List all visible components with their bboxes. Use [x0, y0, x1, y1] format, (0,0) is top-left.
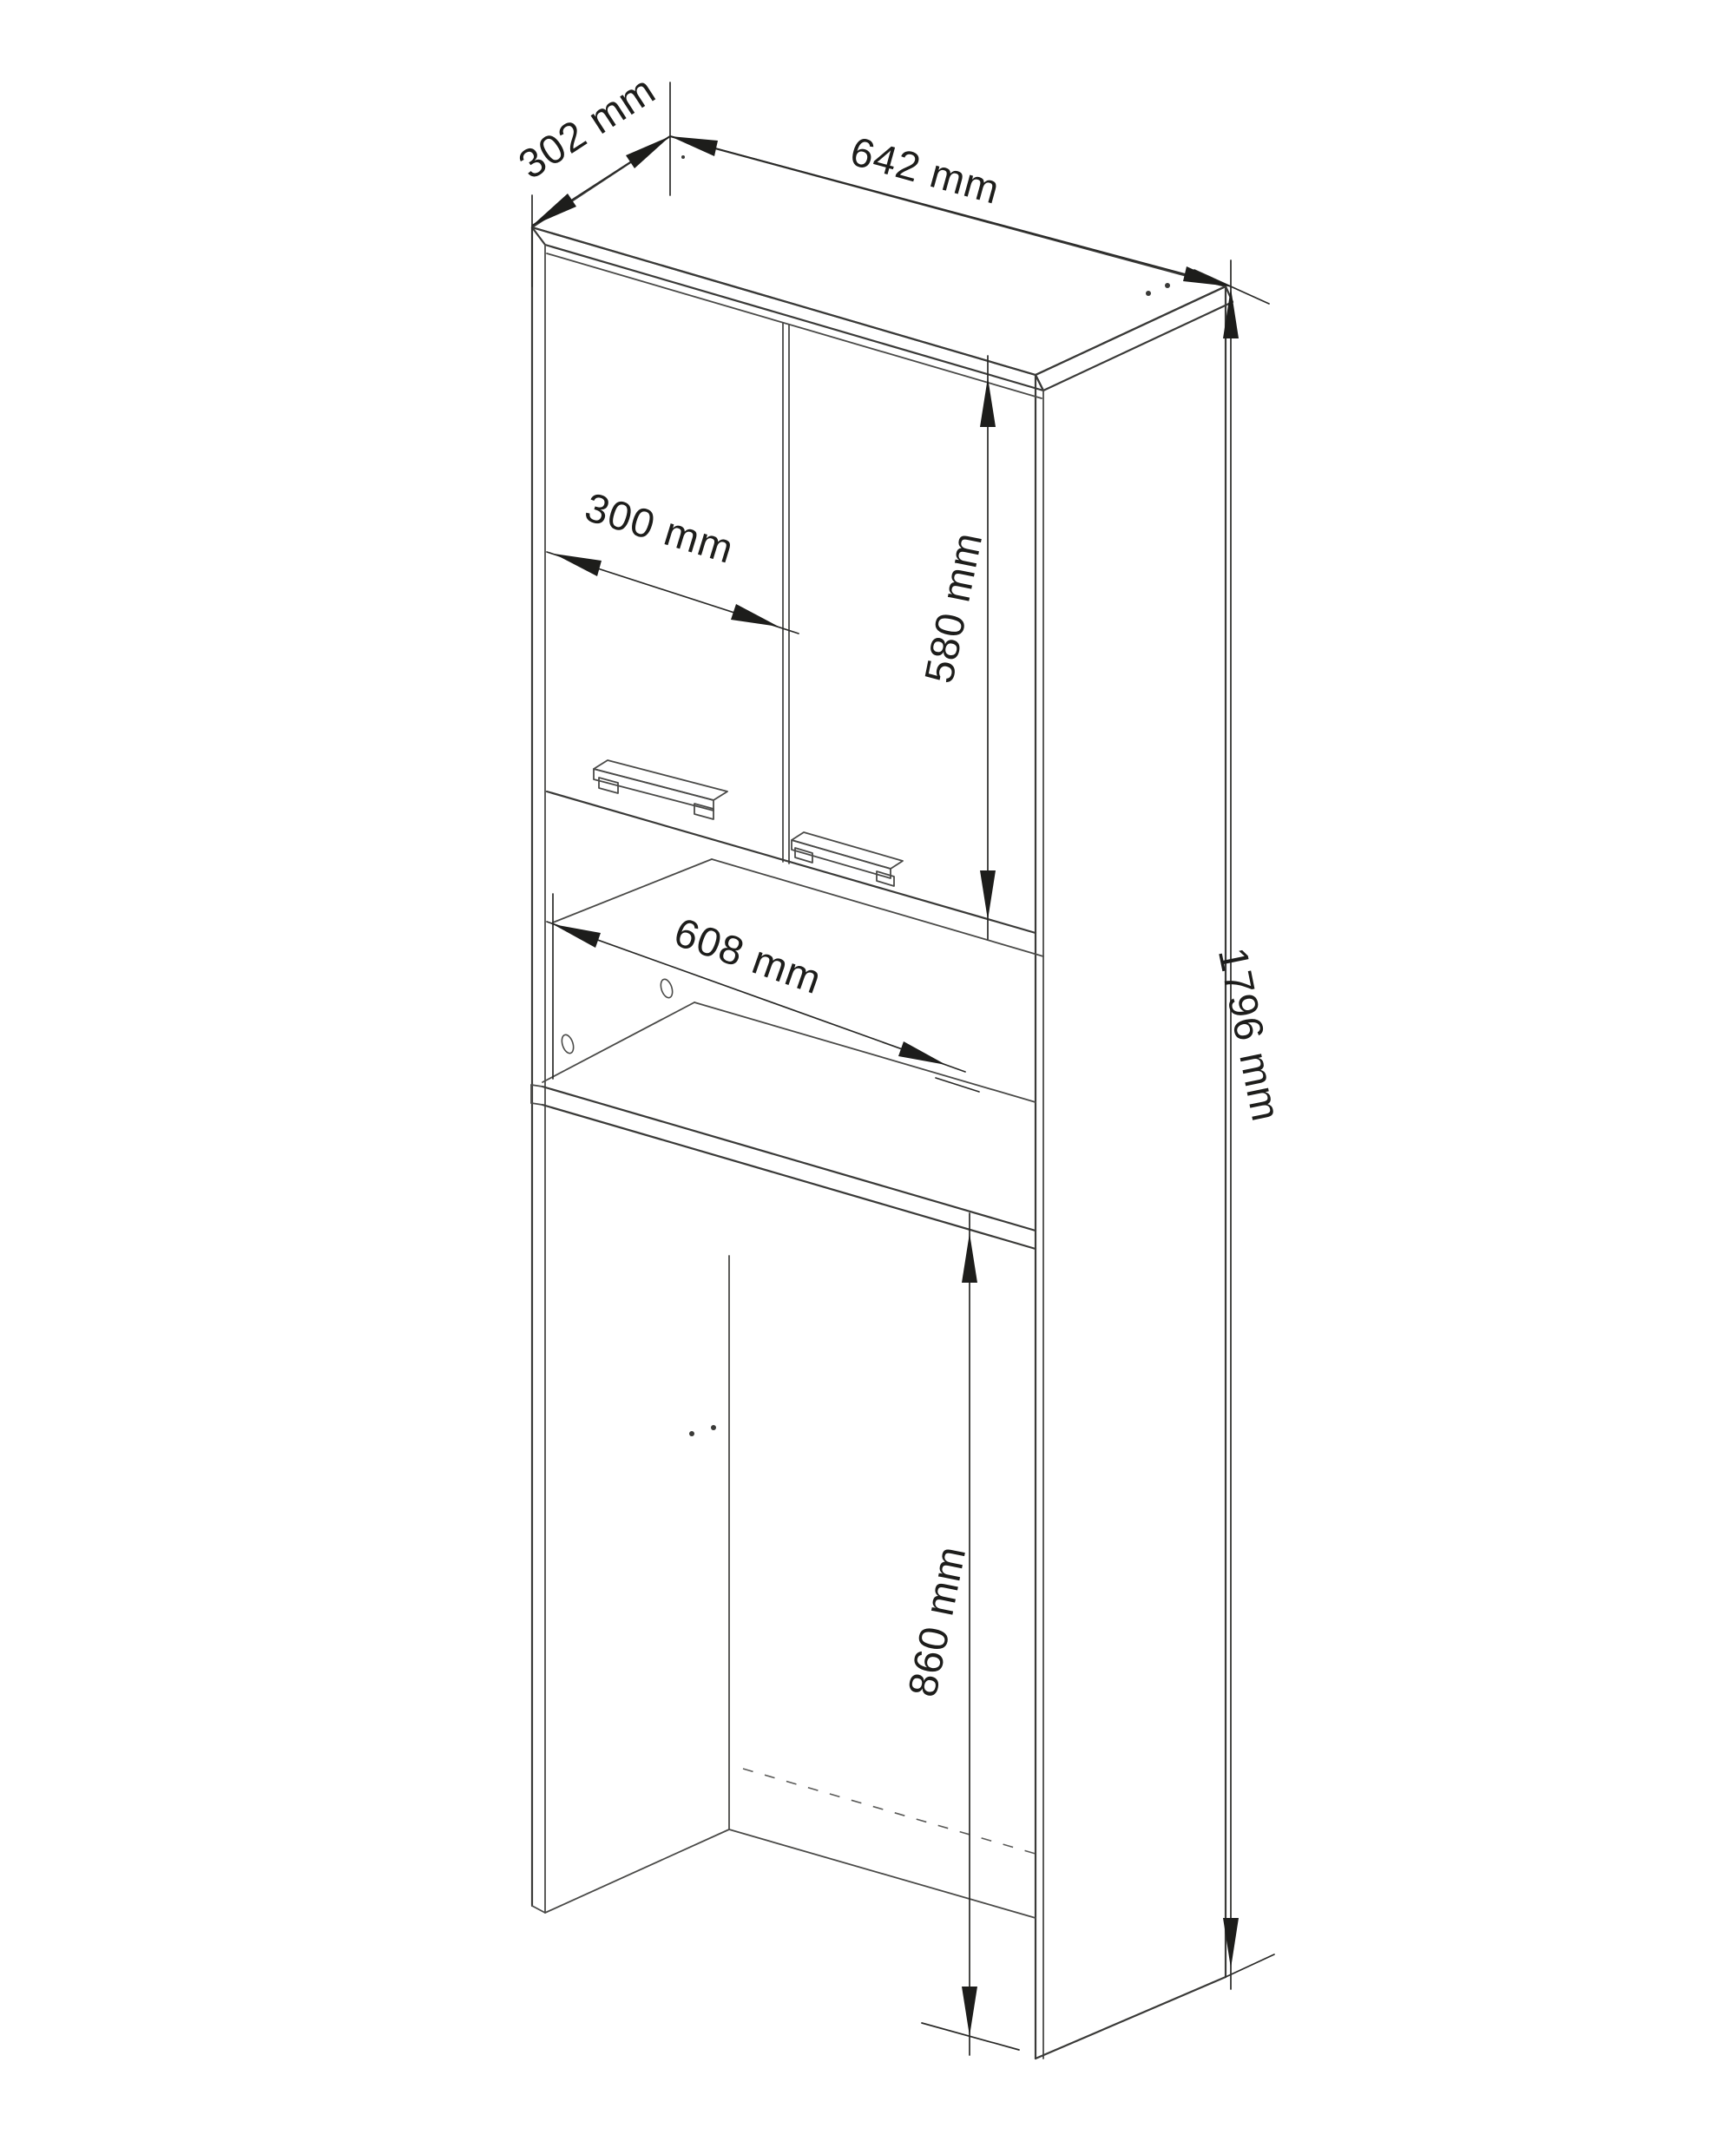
dimension-niche-width: 608 mm — [547, 894, 979, 1092]
door-handles — [594, 760, 903, 886]
arrowhead — [553, 924, 601, 948]
drawing-page: 302 mm 642 mm 300 mm 580 mm — [0, 0, 1736, 2141]
arrowhead — [626, 136, 670, 168]
floor-back-edge — [729, 1829, 1036, 1918]
arrowhead — [532, 194, 576, 226]
dim-label-door-width: 300 mm — [580, 483, 740, 572]
cabinet-structure — [531, 136, 1233, 2059]
shelf-pin-hole-lower — [560, 1034, 575, 1055]
fitting-dot-top-1 — [1146, 291, 1151, 296]
extension-line — [1226, 1954, 1274, 1977]
dimension-machine-space-height: 860 mm — [899, 1213, 1019, 2055]
arrowhead — [980, 870, 996, 920]
dim-label-door-height: 580 mm — [916, 529, 991, 687]
arrowhead — [962, 1233, 977, 1283]
dimension-total-height: 1796 mm — [1210, 260, 1290, 1989]
arrowhead — [731, 604, 779, 627]
dimension-depth: 302 mm — [510, 66, 670, 286]
left-panel-bottom-edge — [532, 1906, 545, 1913]
bottom-board-bottom-edge — [542, 1105, 1036, 1249]
dim-label-total-height: 1796 mm — [1210, 943, 1290, 1125]
dimension-door-height: 580 mm — [916, 356, 996, 939]
arrowhead — [1183, 266, 1231, 286]
door-bottom-edge — [547, 791, 1036, 933]
niche-floor-depth-edge — [542, 1002, 694, 1082]
arrowhead — [554, 554, 602, 576]
bottom-board-top-edge — [542, 1087, 1036, 1231]
fitting-dot-back-1 — [689, 1431, 694, 1436]
dimensions: 302 mm 642 mm 300 mm 580 mm — [510, 66, 1290, 2055]
niche-floor-back-edge — [694, 1002, 1036, 1102]
fitting-dot-top-3 — [681, 155, 685, 159]
top-slab-front-face — [532, 227, 1043, 391]
dimension-door-width: 300 mm — [547, 483, 799, 634]
floor-left-depth-edge — [545, 1829, 729, 1913]
dimension-width: 642 mm — [670, 128, 1269, 304]
shelf-pin-hole-upper — [659, 978, 674, 1000]
right-side-bottom-edge — [1036, 1977, 1226, 2059]
arrowhead — [962, 1987, 977, 2036]
dim-label-niche-width: 608 mm — [668, 909, 827, 1003]
door-top-edge — [547, 253, 1042, 398]
dim-label-machine-space-height: 860 mm — [899, 1542, 975, 1701]
arrowhead — [670, 136, 718, 156]
fitting-dot-top-2 — [1165, 283, 1170, 288]
top-slab-right-face — [1036, 286, 1233, 391]
fitting-dot-back-2 — [711, 1425, 716, 1430]
dim-label-depth: 302 mm — [510, 66, 663, 187]
arrowhead — [898, 1041, 946, 1065]
dim-label-width: 642 mm — [845, 128, 1005, 213]
cabinet-dimension-drawing: 302 mm 642 mm 300 mm 580 mm — [0, 0, 1736, 2141]
plinth-hidden-edge — [743, 1769, 1036, 1854]
